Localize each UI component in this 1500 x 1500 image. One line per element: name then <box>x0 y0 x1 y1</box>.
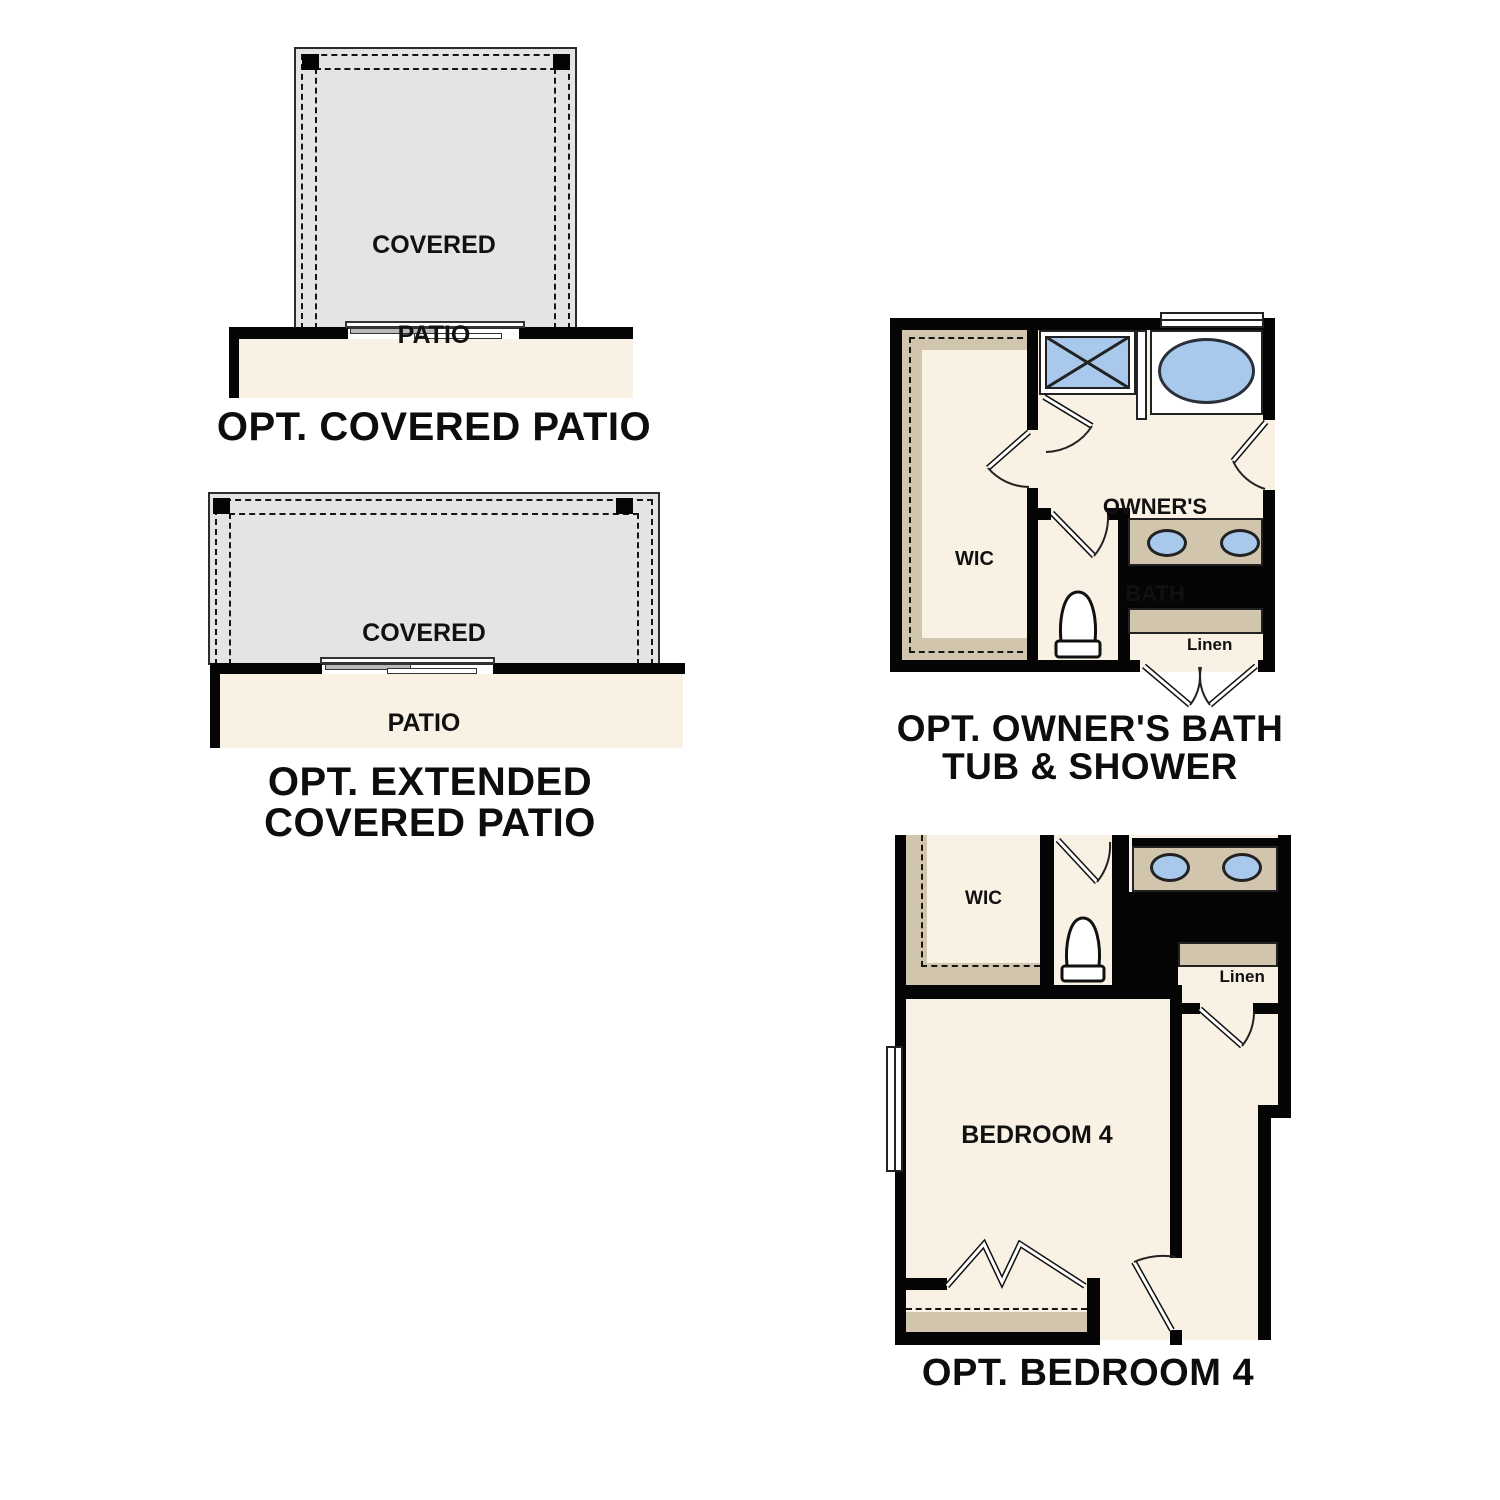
room-label-line: PATIO <box>324 708 524 738</box>
patio-post <box>213 498 230 514</box>
bath-title-line: OWNER'S <box>1060 492 1250 521</box>
linen-closet: Linen <box>1178 942 1278 967</box>
bath-interior-wall <box>1129 892 1291 942</box>
caption-line: OPT. OWNER'S BATH <box>880 710 1300 748</box>
caption-line: OPT. EXTENDED <box>200 762 660 803</box>
house-wall-corner <box>229 327 239 398</box>
house-wall <box>229 327 348 339</box>
closet-front-wall <box>906 1278 947 1290</box>
patio-post <box>302 54 319 70</box>
door-opening <box>1263 420 1275 490</box>
patio-post <box>553 54 570 70</box>
bedroom-right-wall <box>1170 1330 1182 1345</box>
caption-line: COVERED PATIO <box>200 803 660 844</box>
sink-icon <box>1222 853 1262 882</box>
house-wall-corner <box>210 663 220 748</box>
wic-label: WIC <box>927 888 1040 910</box>
wic-wall <box>1040 835 1054 993</box>
linen-wall-stub <box>1253 1003 1278 1014</box>
house-wall <box>519 327 633 339</box>
caption-line: TUB & SHOWER <box>880 748 1300 786</box>
vanity-backsplash-wall <box>1132 838 1278 846</box>
diagram-caption: OPT. BEDROOM 4 <box>878 1352 1298 1395</box>
diagram-caption: OPT. COVERED PATIO <box>204 405 664 450</box>
linen-label: Linen <box>1220 967 1265 986</box>
patio-post <box>616 498 633 514</box>
bedroom-right-wall <box>1170 990 1182 1258</box>
room-label-line: PATIO <box>334 320 534 350</box>
wic-label: WIC <box>922 548 1027 571</box>
closet-rod-line <box>906 1308 1087 1310</box>
room-label-line: COVERED <box>334 230 534 260</box>
tub-basin <box>1158 338 1255 404</box>
bath-title-line: BATH <box>1060 579 1250 608</box>
bath-title: OWNER'S BATH <box>1060 434 1250 666</box>
diagram-caption: OPT. OWNER'S BATH TUB & SHOWER <box>880 710 1300 786</box>
diagram-caption: OPT. EXTENDED COVERED PATIO <box>200 762 660 844</box>
exterior-mask <box>1271 1118 1291 1345</box>
toilet-room-wall <box>1037 508 1051 520</box>
right-wall-upper <box>1278 835 1291 1105</box>
wic-floor <box>922 350 1027 638</box>
sink-icon <box>1150 853 1190 882</box>
window <box>886 1046 903 1172</box>
floorplan-options-sheet: COVERED PATIO OPT. COVERED PATIO COVERED… <box>0 0 1500 1500</box>
window <box>1160 312 1264 328</box>
bottom-wall <box>895 1332 1100 1345</box>
knee-wall <box>1136 330 1147 420</box>
wic-wall <box>1027 330 1038 430</box>
house-wall <box>210 663 322 674</box>
closet-shelf <box>906 1312 1087 1332</box>
room-label-line: COVERED <box>324 618 524 648</box>
bedroom-label: BEDROOM 4 <box>917 1121 1157 1150</box>
toilet-room-wall <box>1112 835 1129 993</box>
patio-room-label: COVERED PATIO <box>334 170 534 410</box>
shower-pan <box>1045 336 1130 389</box>
right-wall-lower <box>1258 1105 1271 1340</box>
